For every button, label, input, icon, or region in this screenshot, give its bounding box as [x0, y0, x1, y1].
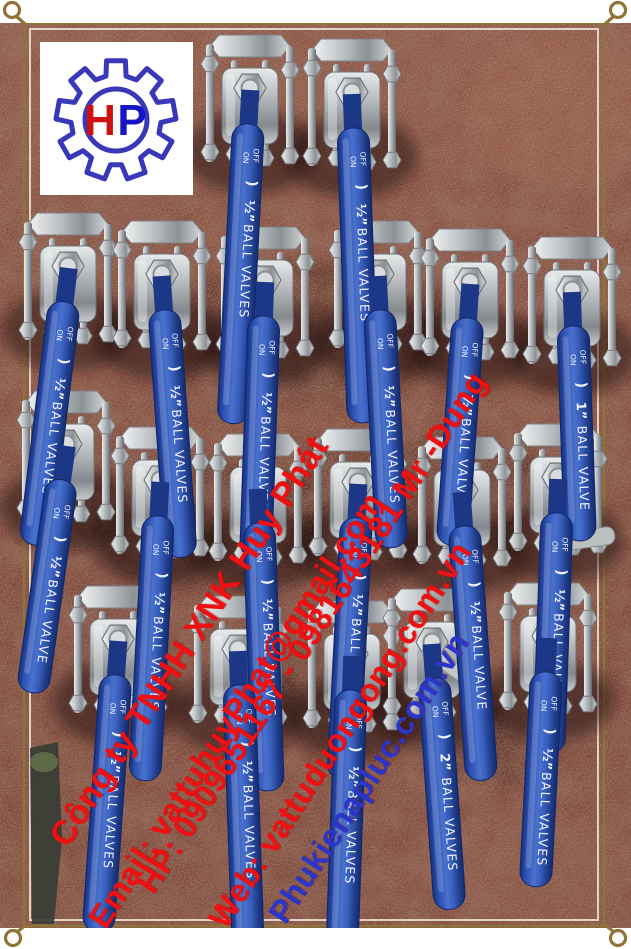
logo-letter-h: H [84, 96, 116, 145]
photo-overlay: H P Công ty TNHH XNK Huy Phát Email: vat… [0, 23, 631, 928]
gear-icon: H P [40, 42, 193, 195]
logo-letter-p: P [117, 96, 146, 145]
bottom-margin [0, 928, 631, 949]
company-logo: H P [40, 42, 193, 195]
photo-canvas: ONOFF)½”BALL VALVESONOFF)½”BALL VALVESON… [0, 0, 631, 949]
top-margin [0, 0, 631, 23]
